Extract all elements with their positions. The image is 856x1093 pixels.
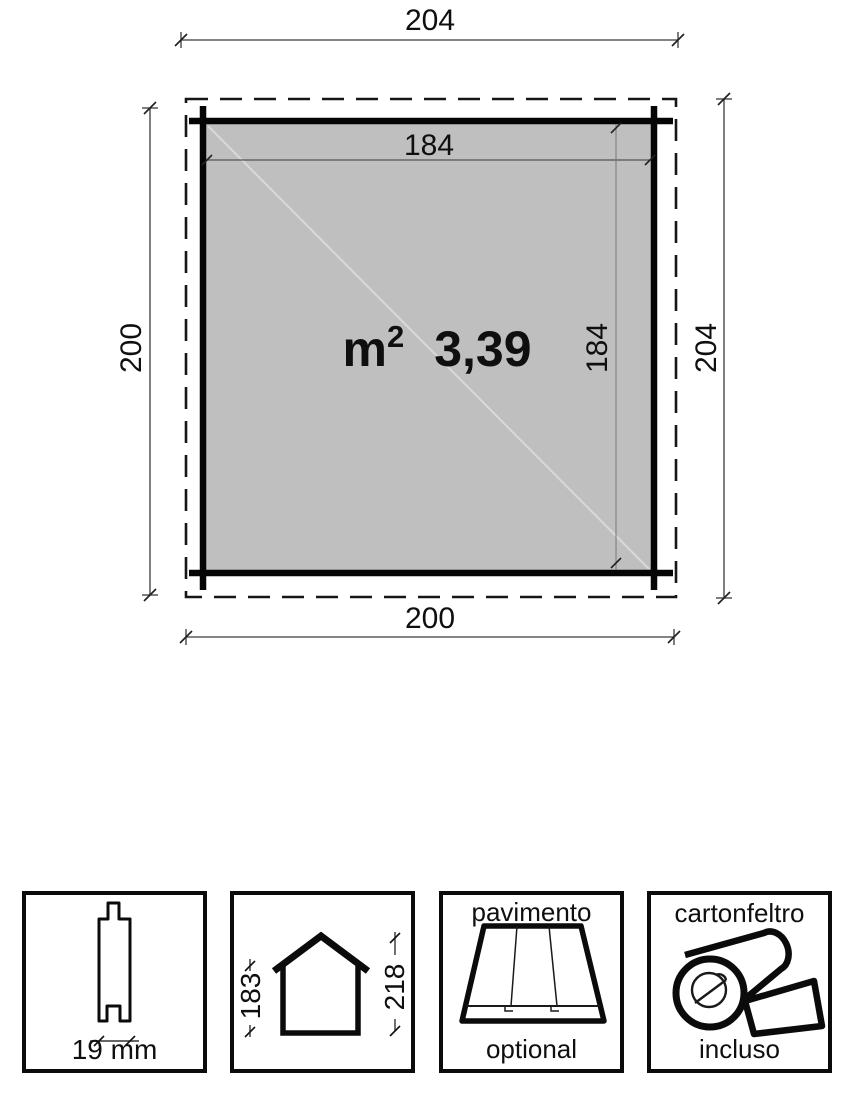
area-exponent: 2 [387, 321, 404, 352]
shed-technical-drawing: 204 200 200 204 184 184 m 2 3,39 19 mm [0, 0, 856, 1093]
plank-thickness-label: 19 mm [26, 1036, 203, 1064]
dim-inner-width-label: 184 [404, 131, 454, 161]
dim-inner-depth-label: 184 [583, 323, 613, 373]
legend-box-floor: pavimento optional [439, 891, 624, 1073]
dim-left-label: 200 [117, 323, 147, 373]
legend-box-plank: 19 mm [22, 891, 207, 1073]
area-value: 3,39 [434, 324, 531, 374]
area-unit: m [342, 324, 386, 374]
dim-bottom-label: 200 [405, 604, 455, 634]
dim-right-label: 204 [692, 323, 722, 373]
dim-top-label: 204 [405, 6, 455, 36]
legend-box-felt: cartonfeltro incluso [647, 891, 832, 1073]
felt-title: cartonfeltro [651, 900, 828, 926]
ridge-height-label: 218 [381, 964, 409, 1011]
floor-area-label: m 2 3,39 [342, 324, 531, 374]
floor-option-status: optional [443, 1036, 620, 1062]
eave-height-label: 183 [237, 973, 265, 1020]
felt-status: incluso [651, 1036, 828, 1062]
floor-option-title: pavimento [443, 899, 620, 925]
legend-box-heights: 183 218 [230, 891, 415, 1073]
